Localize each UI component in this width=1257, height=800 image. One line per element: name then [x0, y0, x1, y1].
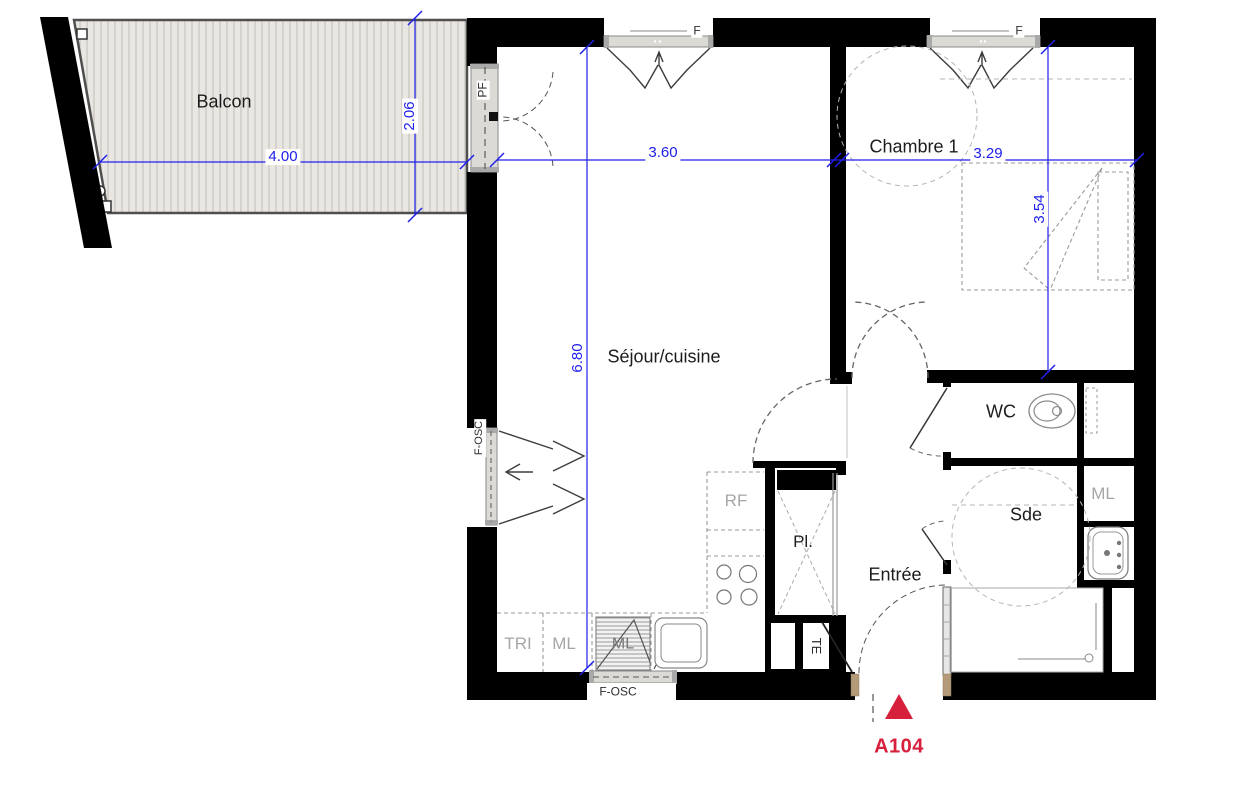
dimension-chambre-width: 3.29 — [970, 146, 1005, 162]
sejour-passage-swing — [753, 379, 837, 463]
sde-door-leaf — [922, 529, 947, 565]
entrance-threshold — [851, 674, 859, 696]
room-label-chambre-1: Chambre 1 — [869, 138, 958, 157]
window-label-f-chambre: F — [1013, 25, 1024, 38]
floor-plan-drawing — [0, 0, 1257, 800]
equipment-label-rf: RF — [725, 492, 748, 510]
balcony-post — [77, 29, 87, 39]
toilet-icon — [1029, 394, 1075, 428]
equipment-label-te: TE — [809, 636, 823, 657]
pf-door-swing — [502, 72, 553, 121]
equipment-label-tri: TRI — [504, 635, 531, 653]
window-label-f-osc-bottom: F-OSC — [597, 686, 638, 699]
window-label-pf: PF — [477, 80, 490, 99]
unit-code-label: A104 — [874, 737, 924, 758]
dimension-balcony-depth: 2.06 — [402, 98, 418, 133]
shower-icon — [950, 588, 1103, 672]
room-label-entree: Entrée — [868, 566, 921, 585]
doors — [502, 72, 951, 722]
vanity-sink-icon — [1088, 527, 1128, 579]
wc-door-leaf — [910, 388, 947, 448]
entrance-marker-triangle — [885, 694, 913, 719]
dimension-sejour-depth: 6.80 — [570, 340, 586, 375]
kitchen-sink-icon — [655, 618, 707, 668]
equipment-label-ml-washer: ML — [612, 637, 634, 654]
bedroom-door-swing — [852, 302, 928, 378]
bathroom-fixtures — [950, 388, 1128, 672]
equipment-label-ml-sde: ML — [1091, 485, 1115, 503]
dimension-balcony-width: 4.00 — [265, 149, 300, 165]
dimension-sejour-width: 3.60 — [645, 145, 680, 161]
equipment-label-ml-counter: ML — [552, 635, 576, 653]
hob-icon — [717, 565, 757, 605]
room-label-sejour-cuisine: Séjour/cuisine — [607, 348, 720, 367]
window-opening-symbols — [499, 48, 1033, 524]
window-label-f-osc-left: F-OSC — [474, 419, 486, 457]
room-label-balcon: Balcon — [196, 93, 251, 112]
equipment-label-placard: Pl. — [793, 533, 813, 551]
dimension-chambre-depth: 3.54 — [1032, 191, 1048, 226]
entrance-threshold — [943, 674, 951, 696]
floor-plan: Balcon Séjour/cuisine Chambre 1 WC Sde E… — [0, 0, 1257, 800]
duct-shaft — [1086, 388, 1097, 433]
window-f-osc-left — [485, 428, 498, 525]
room-label-wc: WC — [986, 403, 1016, 422]
room-label-sde: Sde — [1010, 506, 1042, 525]
window-label-f-sejour: F — [691, 25, 702, 38]
